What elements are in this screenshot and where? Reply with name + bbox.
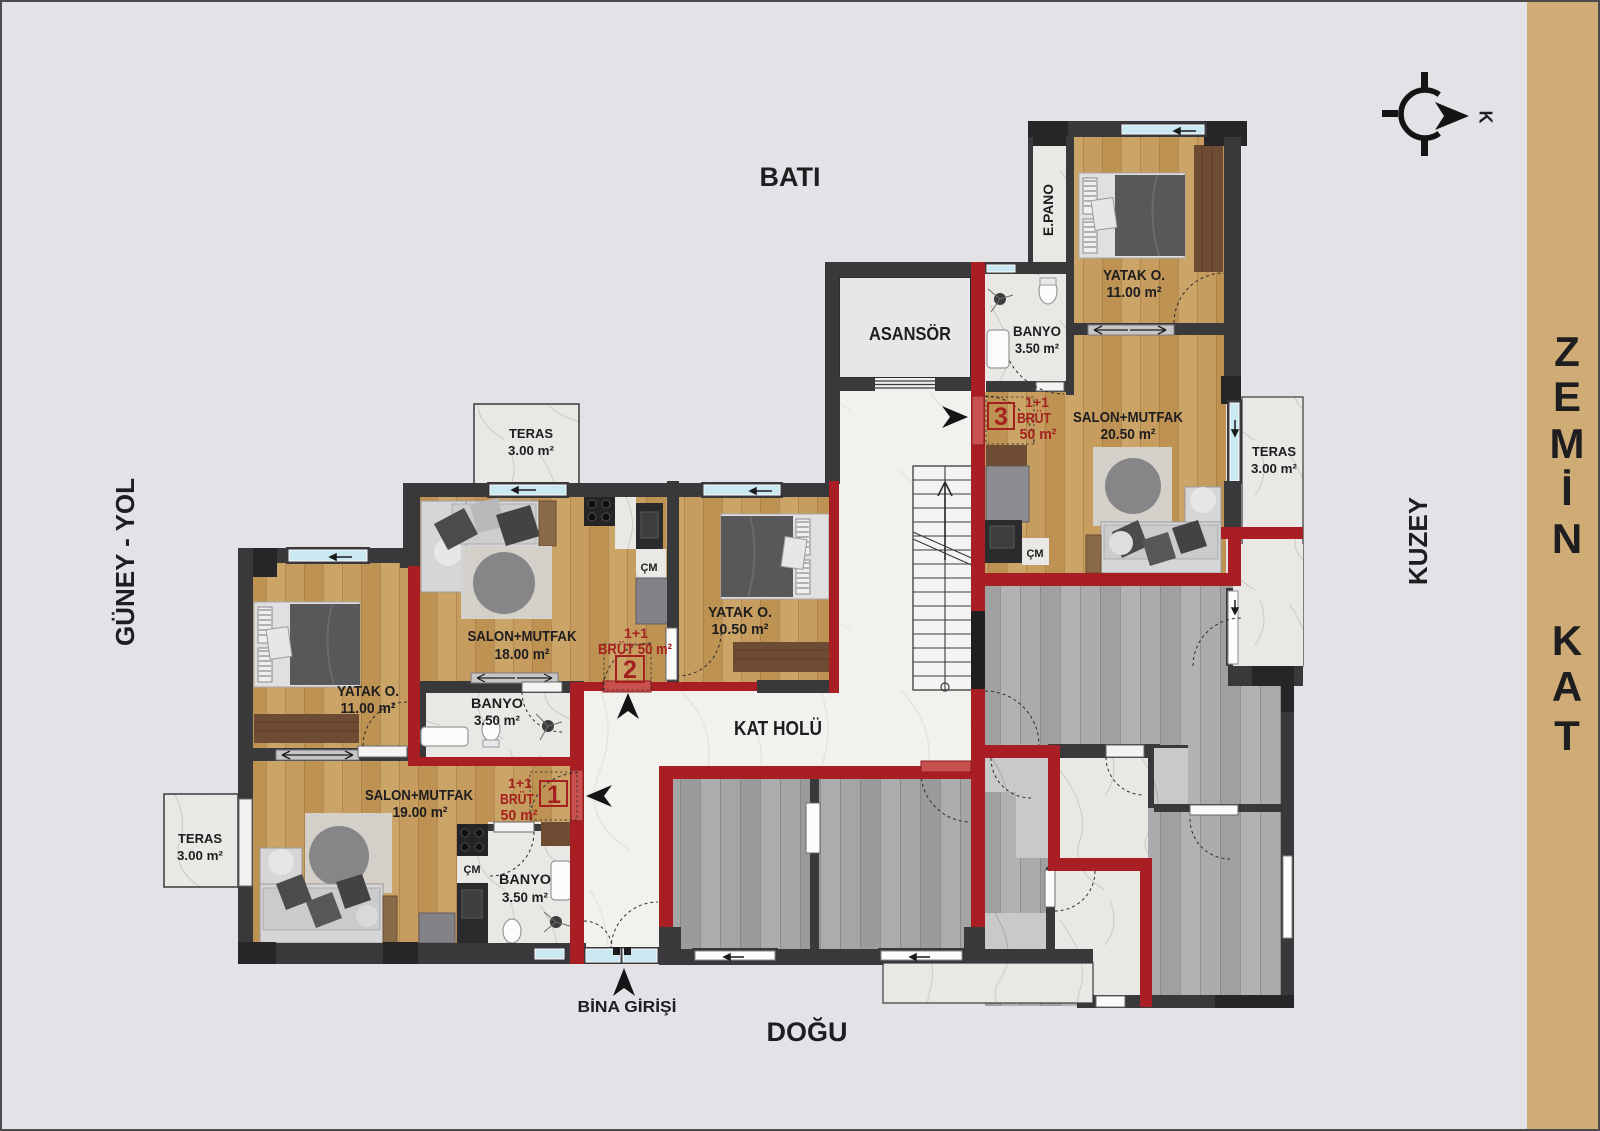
svg-text:1+1: 1+1 <box>508 775 532 791</box>
svg-text:BANYO: BANYO <box>1013 323 1061 339</box>
svg-text:3.00 m²: 3.00 m² <box>177 848 224 863</box>
svg-text:M: M <box>1550 420 1585 467</box>
svg-text:1: 1 <box>547 781 561 809</box>
svg-text:GÜNEY - YOL: GÜNEY - YOL <box>110 478 140 646</box>
svg-text:BRÜT: BRÜT <box>1017 410 1051 427</box>
svg-text:E.PANO: E.PANO <box>1040 184 1056 236</box>
svg-text:TERAS: TERAS <box>509 426 553 441</box>
svg-text:ÇM: ÇM <box>640 562 657 574</box>
svg-text:3.00 m²: 3.00 m² <box>1251 461 1298 476</box>
svg-text:TERAS: TERAS <box>178 831 222 846</box>
svg-text:3.50 m²: 3.50 m² <box>1015 340 1059 356</box>
svg-text:YATAK O.: YATAK O. <box>1103 267 1165 284</box>
svg-text:3.50 m²: 3.50 m² <box>474 712 520 728</box>
svg-text:ASANSÖR: ASANSÖR <box>869 324 951 344</box>
svg-text:3: 3 <box>994 403 1008 431</box>
svg-text:BRÜT: BRÜT <box>500 791 534 808</box>
svg-text:2: 2 <box>623 656 637 684</box>
svg-text:BANYO: BANYO <box>499 871 551 887</box>
svg-text:A: A <box>1552 663 1582 710</box>
svg-text:KAT HOLÜ: KAT HOLÜ <box>734 717 822 740</box>
svg-text:3.50 m²: 3.50 m² <box>502 889 548 905</box>
svg-text:19.00 m²: 19.00 m² <box>393 804 448 821</box>
svg-text:KUZEY: KUZEY <box>1403 497 1433 585</box>
svg-text:11.00 m²: 11.00 m² <box>1107 284 1162 301</box>
svg-text:SALON+MUTFAK: SALON+MUTFAK <box>468 628 577 645</box>
svg-text:ÇM: ÇM <box>1026 548 1043 560</box>
svg-text:BANYO: BANYO <box>471 695 523 711</box>
svg-text:Z: Z <box>1554 328 1580 375</box>
svg-text:20.50 m²: 20.50 m² <box>1101 426 1156 443</box>
svg-text:K: K <box>1475 111 1495 124</box>
svg-text:DOĞU: DOĞU <box>767 1016 848 1047</box>
svg-text:11.00 m²: 11.00 m² <box>341 700 396 717</box>
svg-text:T: T <box>1554 712 1580 759</box>
svg-text:İ: İ <box>1561 467 1573 514</box>
svg-text:K: K <box>1552 617 1582 664</box>
svg-text:ÇM: ÇM <box>463 864 480 876</box>
svg-text:18.00 m²: 18.00 m² <box>495 646 550 663</box>
svg-text:N: N <box>1552 515 1582 562</box>
svg-text:E: E <box>1553 373 1581 420</box>
svg-text:SALON+MUTFAK: SALON+MUTFAK <box>1073 409 1183 426</box>
svg-text:YATAK O.: YATAK O. <box>337 683 399 700</box>
svg-text:TERAS: TERAS <box>1252 444 1296 459</box>
svg-text:BATI: BATI <box>760 162 821 192</box>
svg-text:50 m²: 50 m² <box>501 807 538 824</box>
svg-text:3.00 m²: 3.00 m² <box>508 443 555 458</box>
svg-text:50 m²: 50 m² <box>1020 426 1057 443</box>
svg-text:YATAK O.: YATAK O. <box>708 604 772 621</box>
svg-text:1+1: 1+1 <box>1025 394 1049 410</box>
svg-text:10.50 m²: 10.50 m² <box>712 621 769 638</box>
svg-text:BİNA GİRİŞİ: BİNA GİRİŞİ <box>578 998 677 1016</box>
svg-text:SALON+MUTFAK: SALON+MUTFAK <box>365 787 473 804</box>
svg-text:1+1: 1+1 <box>624 625 648 641</box>
